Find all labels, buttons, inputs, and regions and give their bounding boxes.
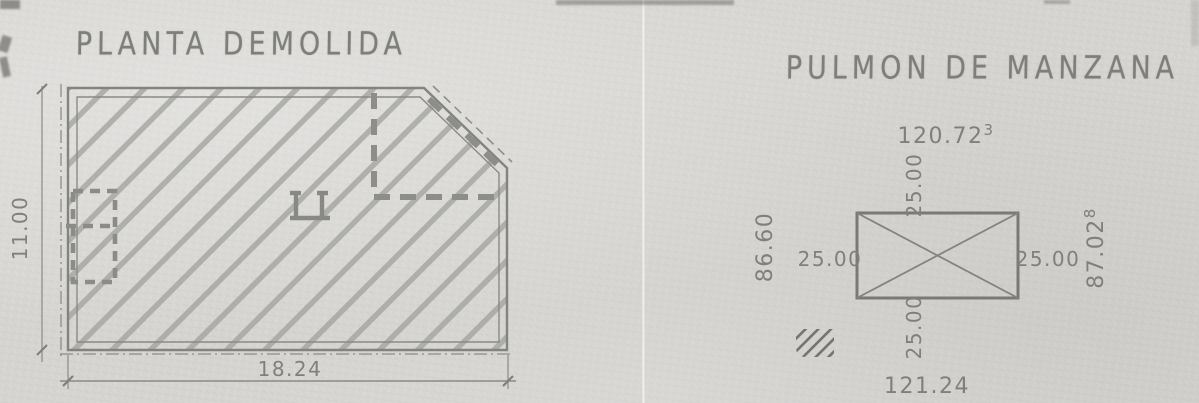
courtyard-rect <box>857 213 1018 298</box>
block-dim-bottom: 121.24 <box>884 374 970 399</box>
offset-right-label: 25.00 <box>1016 247 1081 271</box>
offset-left-label: 25.00 <box>798 247 863 271</box>
block-dim-right: 87.028 <box>1081 207 1109 289</box>
offset-top-label: 25.00 <box>902 153 926 218</box>
dimension-width-label: 18.24 <box>258 357 323 381</box>
hatched-corner-plot <box>796 329 834 357</box>
demolished-plan: 11.00 18.24 <box>8 84 516 389</box>
dimension-height-label: 11.00 <box>8 196 32 261</box>
dimension-height: 11.00 <box>8 84 47 362</box>
block-dim-left: 86.60 <box>753 212 778 282</box>
offset-bottom-label: 25.00 <box>902 295 926 360</box>
block-core-diagram: 25.00 25.00 25.00 25.00 120.723 121.24 8… <box>753 121 1109 399</box>
dimension-width: 18.24 <box>60 355 516 389</box>
hatched-floor-area <box>68 88 507 350</box>
drawing-linework: 11.00 18.24 <box>0 0 1199 403</box>
block-dim-top: 120.723 <box>897 121 994 149</box>
scanned-drawing-sheet: PLANTA DEMOLIDA PULMON DE MANZANA <box>0 0 1199 403</box>
